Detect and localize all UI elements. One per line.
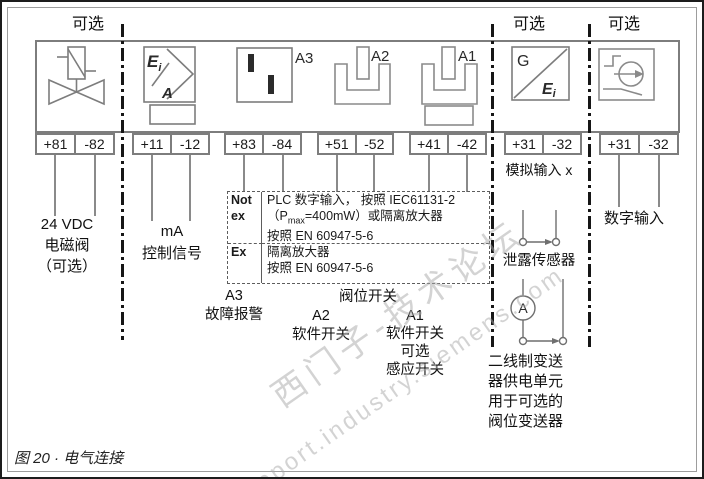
lead-42 xyxy=(466,155,468,192)
terminal-minus-12: -12 xyxy=(170,133,210,155)
terminal-pair-analog: +31 -32 xyxy=(504,133,582,155)
a1-label-line1: A1 xyxy=(382,307,448,325)
a2-icon-label: A2 xyxy=(371,48,389,65)
alarm-output-a3-icon: A3 xyxy=(235,46,314,104)
terminal-minus-84: -84 xyxy=(262,133,302,155)
current-converter-icon: Ei A xyxy=(142,45,198,126)
spec-not-ex-line1: PLC 数字输入， 按照 IEC61131-2 xyxy=(267,193,489,209)
lead-51 xyxy=(336,155,338,192)
spec-not-ex-line2: （Pmax=400mW）或隔离放大器 xyxy=(267,209,489,229)
section-separator-2 xyxy=(491,24,494,347)
figure-caption: 图 20 · 电气连接 xyxy=(14,447,123,468)
optional-label-left: 可选 xyxy=(60,10,116,34)
two-wire-transmitter-icon: A xyxy=(498,278,580,348)
terminal-plus-11: +11 xyxy=(132,133,172,155)
lead-31-digital xyxy=(618,155,620,207)
transmitter-label-line4: 阀位变送器 xyxy=(488,412,572,432)
lead-11 xyxy=(151,155,153,221)
a2-label-line2: 软件开关 xyxy=(288,326,354,345)
slot-sensor-a2-icon: A2 xyxy=(332,45,394,106)
a1-label-line4: 感应开关 xyxy=(382,361,448,379)
lead-81 xyxy=(54,155,56,216)
leakage-sensor-label: 泄露传感器 xyxy=(498,251,580,271)
converter-letter-e: E xyxy=(147,52,159,71)
lead-12 xyxy=(189,155,191,221)
lead-52 xyxy=(373,155,375,192)
valve-switch-label: 阀位开关 xyxy=(333,287,403,307)
lead-32-digital xyxy=(658,155,660,207)
pmax-suffix: =400mW）或隔离放大器 xyxy=(305,209,443,223)
digital-input-icon xyxy=(597,47,657,103)
transmitter-label-line3: 用于可选的 xyxy=(488,392,572,412)
spec-ex-line1: 隔离放大器 xyxy=(267,245,489,261)
a3-label-line1: A3 xyxy=(202,287,266,306)
lead-82 xyxy=(94,155,96,216)
terminal-pair-a1: +41 -42 xyxy=(409,133,487,155)
spec-key-not-ex: Not ex xyxy=(228,192,262,243)
leakage-sensor-icon xyxy=(507,208,577,250)
digital-input-label: 数字输入 xyxy=(598,209,670,229)
a1-label-line2: 软件开关 xyxy=(382,325,448,343)
a3-label-line2: 故障报警 xyxy=(202,306,266,325)
terminal-plus-41: +41 xyxy=(409,133,449,155)
terminal-minus-52: -52 xyxy=(355,133,395,155)
spec-key-ex-lower: ex xyxy=(231,209,259,225)
a1-switch-label: A1 软件开关 可选 感应开关 xyxy=(382,307,448,379)
terminal-minus-82: -82 xyxy=(74,133,115,155)
spec-not-ex-text: PLC 数字输入， 按照 IEC61131-2 （Pmax=400mW）或隔离放… xyxy=(262,192,489,243)
a3-icon-label: A3 xyxy=(295,50,313,67)
terminal-minus-42: -42 xyxy=(447,133,487,155)
a2-switch-label: A2 软件开关 xyxy=(288,307,354,345)
terminal-plus-51: +51 xyxy=(317,133,357,155)
ma-label-line1: mA xyxy=(130,221,214,243)
terminal-pair-digital: +31 -32 xyxy=(599,133,679,155)
terminal-minus-32-analog: -32 xyxy=(542,133,582,155)
converter-letter-a: A xyxy=(161,85,173,102)
transmitter-label: 二线制变送 器供电单元 用于可选的 阀位变送器 xyxy=(488,352,572,432)
analog-input-label: 模拟输入 x xyxy=(500,160,578,180)
transmitter-label-line1: 二线制变送 xyxy=(488,352,572,372)
optional-label-mid: 可选 xyxy=(501,10,557,34)
spec-key-not: Not xyxy=(231,193,259,209)
lead-41 xyxy=(428,155,430,192)
a1-label-line3: 可选 xyxy=(382,343,448,361)
solenoid-valve-icon xyxy=(46,44,112,106)
spec-not-ex-line3: 按照 EN 60947-5-6 xyxy=(267,229,489,245)
spec-key-ex: Ex xyxy=(228,243,262,283)
terminal-pair-a3: +83 -84 xyxy=(224,133,302,155)
lead-84 xyxy=(282,155,284,192)
terminal-plus-31-analog: +31 xyxy=(504,133,544,155)
spec-key-ex-label: Ex xyxy=(231,245,259,261)
terminal-pair-solenoid: +81 -82 xyxy=(35,133,115,155)
transmitter-label-line2: 器供电单元 xyxy=(488,372,572,392)
solenoid-label-line2: 电磁阀 xyxy=(17,235,117,256)
ma-signal-label: mA 控制信号 xyxy=(130,221,214,265)
ammeter-letter: A xyxy=(518,300,528,316)
a2-label-line1: A2 xyxy=(288,307,354,326)
section-separator-3 xyxy=(588,24,591,347)
terminal-plus-81: +81 xyxy=(35,133,76,155)
supply-letter-g: G xyxy=(517,53,529,70)
electrical-connection-diagram: 西门子-技术论坛 support.industry.siemens.com 可选… xyxy=(0,0,704,479)
slot-sensor-a1-icon: A1 xyxy=(419,45,482,127)
lead-83 xyxy=(243,155,245,192)
terminal-plus-31-digital: +31 xyxy=(599,133,640,155)
optional-label-right: 可选 xyxy=(596,10,652,34)
terminal-minus-32-digital: -32 xyxy=(638,133,679,155)
pmax-prefix: （P xyxy=(267,209,288,223)
section-separator-1 xyxy=(121,24,124,340)
a3-alarm-label: A3 故障报警 xyxy=(202,287,266,325)
spec-ex-line2: 按照 EN 60947-5-6 xyxy=(267,261,489,277)
spec-ex-text: 隔离放大器 按照 EN 60947-5-6 xyxy=(262,243,489,283)
a1-icon-label: A1 xyxy=(458,48,476,65)
ma-label-line2: 控制信号 xyxy=(130,243,214,265)
pmax-sub: max xyxy=(288,215,305,225)
spec-box: Not ex PLC 数字输入， 按照 IEC61131-2 （Pmax=400… xyxy=(227,191,490,284)
solenoid-label-line1: 24 VDC xyxy=(17,214,117,235)
terminal-pair-ma: +11 -12 xyxy=(132,133,210,155)
solenoid-label-line3: （可选） xyxy=(17,256,117,277)
transmitter-supply-icon: G Ei xyxy=(510,45,572,103)
solenoid-label: 24 VDC 电磁阀 （可选） xyxy=(17,214,117,277)
terminal-pair-a2: +51 -52 xyxy=(317,133,394,155)
terminal-plus-83: +83 xyxy=(224,133,264,155)
